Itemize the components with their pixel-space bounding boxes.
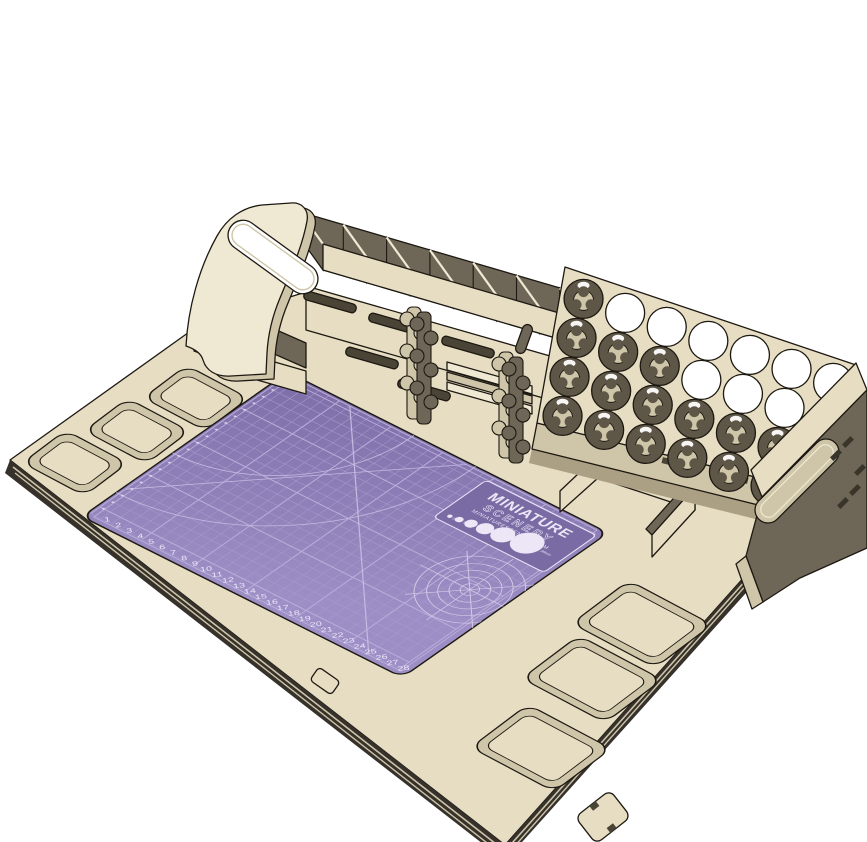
clip-post-front-lobe [424,363,438,377]
clip-post-front-2-lobe [502,362,516,376]
workstation-render: MINIATURE SCENERY MINIATURESCENERY.COM 2… [0,0,867,842]
clip-post-front-2-lobe [502,426,516,440]
workstation-scene: MINIATURE SCENERY MINIATURESCENERY.COM 2… [0,0,867,842]
rack-hole-cradle [585,410,624,449]
clip-post-front-lobe [410,349,424,363]
mat-ruler-number: 5 [148,538,155,546]
rack-hole-open [647,307,686,346]
rack-cradle-lobe [689,458,700,469]
rack-cradle-lobe [606,430,617,441]
mat-ruler-number: 7 [170,549,177,557]
rack-cradle-lobe [731,420,742,431]
rack-cradle-lobe [682,419,693,430]
clip-post-front-lobe [424,395,438,409]
rack-hole-open [606,293,645,332]
rack-cradle-lobe [571,299,582,310]
rack-cradle-lobe [689,406,700,417]
rack-hole-cradle [633,385,672,424]
mat-ruler-number: 28 [397,664,410,672]
rack-cradle-lobe [564,364,575,375]
edge-bracket-front [575,790,631,842]
rack-cradle-lobe [647,366,658,377]
rack-hole-open [689,321,728,360]
rack-cradle-lobe [605,352,616,363]
rack-hole-cradle [592,371,631,410]
rack-hole-cradle [668,438,707,477]
rack-hole-cradle [675,399,714,438]
rack-hole-cradle [626,424,665,463]
mat-ruler-number: 6 [159,543,166,551]
rack-hole-cradle [550,357,589,396]
rack-cradle-lobe [654,353,665,364]
rack-cradle-lobe [696,419,707,430]
rack-cradle-lobe [564,338,575,349]
rack-cradle-lobe [598,391,609,402]
rack-cradle-lobe [655,405,666,416]
rack-cradle-lobe [633,444,644,455]
rack-cradle-lobe [738,433,749,444]
rack-cradle-lobe [620,352,631,363]
rack-hole-cradle [543,396,582,435]
mat-ruler-number: 4 [137,532,144,540]
rack-cradle-lobe [579,338,590,349]
clip-post-front-lobe [410,317,424,331]
rack-cradle-lobe [550,416,561,427]
rack-cradle-lobe [640,405,651,416]
mat-ruler-number: 1 [104,516,111,524]
rack-cradle-lobe [716,472,727,483]
rack-cradle-lobe [662,366,673,377]
rack-cradle-lobe [647,392,658,403]
clip-post-front-2-lobe [516,376,530,390]
rack-cradle-lobe [723,433,734,444]
rack-cradle-lobe [578,286,589,297]
clip-post-front-2-lobe [516,440,530,454]
rack-cradle-lobe [675,458,686,469]
rack-hole-cradle [599,332,638,371]
rack-cradle-lobe [640,431,651,442]
rack-cradle-lobe [586,299,597,310]
rack-cradle-lobe [613,391,624,402]
clip-post-front-lobe [424,331,438,345]
clip-post-front-lobe [410,381,424,395]
rack-cradle-lobe [557,377,568,388]
rack-cradle-lobe [724,459,735,470]
clip-post-front-2-lobe [516,408,530,422]
rack-cradle-lobe [731,472,742,483]
rack-cradle-lobe [599,417,610,428]
rack-hole-cradle [709,452,748,491]
rack-cradle-lobe [571,325,582,336]
rack-cradle-lobe [572,377,583,388]
rack-cradle-lobe [648,444,659,455]
rack-cradle-lobe [565,416,576,427]
rack-cradle-lobe [606,378,617,389]
rack-cradle-lobe [557,403,568,414]
rack-hole-open [682,360,721,399]
rack-hole-cradle [564,279,603,318]
rack-hole-open [772,349,811,388]
rack-hole-cradle [640,346,679,385]
clip-post-front-2-lobe [502,394,516,408]
rack-cradle-lobe [591,430,602,441]
rack-hole-open [730,335,769,374]
mat-ruler-number: 2 [115,521,122,529]
rack-cradle-lobe [613,339,624,350]
rack-hole-cradle [557,318,596,357]
rack-hole-cradle [716,413,755,452]
rack-hole-open [723,374,762,413]
rack-cradle-lobe [682,445,693,456]
mat-ruler-number: 3 [126,527,133,535]
mat-ruler-number: 8 [181,554,188,562]
